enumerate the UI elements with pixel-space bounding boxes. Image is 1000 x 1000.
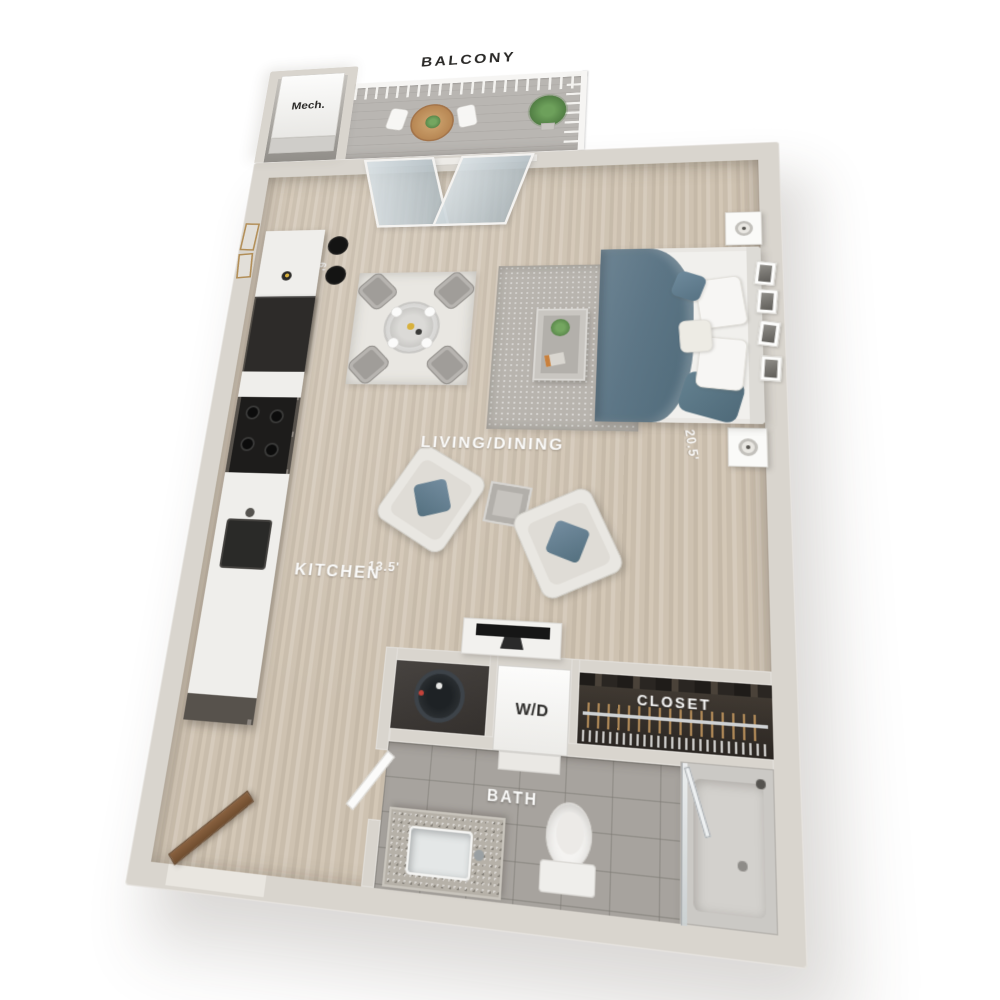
breakfast-bar	[255, 230, 325, 297]
floorplan: BALCONY Mech.	[125, 142, 808, 970]
accent-pillow	[678, 319, 713, 353]
bath-vanity	[382, 807, 506, 901]
mech-unit-front	[268, 136, 336, 154]
countertop	[238, 371, 305, 397]
wall-art-photo	[760, 293, 774, 311]
burner	[245, 405, 261, 419]
kitchen-faucet	[245, 508, 256, 518]
wall-art-photo	[764, 359, 778, 377]
burner	[269, 409, 285, 423]
nightstand	[727, 427, 768, 467]
refrigerator	[244, 296, 316, 372]
table-lamp	[738, 438, 758, 456]
balcony-chair	[385, 108, 410, 131]
floorplan-page: BALCONY Mech.	[0, 0, 1000, 1000]
wall-art-frame	[754, 261, 777, 286]
balcony-chair	[456, 104, 478, 129]
gold-wall-frame	[236, 253, 253, 279]
shower-stall	[680, 761, 779, 935]
tv-stand	[500, 637, 524, 650]
water-heater-closet	[390, 660, 489, 736]
washer-dryer: W/D	[492, 665, 571, 757]
wall-art-photo	[762, 324, 777, 343]
burner	[263, 443, 279, 458]
utility-bath-block: W/D CLOSET BATH	[361, 646, 778, 935]
cooktop-stove	[229, 397, 298, 474]
shower-head	[756, 779, 766, 790]
kitchen-sink	[219, 518, 273, 570]
toilet-tank	[538, 859, 596, 898]
wall-art-frame	[760, 355, 783, 381]
bed	[595, 246, 765, 424]
shower-tray	[693, 778, 766, 919]
sink-counter	[205, 501, 285, 592]
wall-art-photo	[758, 265, 772, 282]
tv-console	[461, 617, 563, 660]
water-heater	[412, 668, 467, 725]
shower-drain	[738, 861, 748, 872]
washer-dryer-label: W/D	[515, 699, 550, 721]
toilet-seat	[555, 811, 584, 856]
bath-faucet	[474, 849, 485, 861]
burner	[239, 437, 255, 451]
balcony-plant-pot	[540, 123, 555, 131]
table-lamp	[735, 221, 753, 236]
mech-closet: Mech.	[254, 66, 358, 162]
mech-label: Mech.	[291, 99, 326, 112]
mech-unit: Mech.	[271, 72, 345, 138]
shower-glass-panel	[681, 763, 688, 926]
countertop	[220, 472, 289, 503]
tv	[476, 623, 551, 639]
balcony-label: BALCONY	[386, 48, 553, 73]
wall-art-frame	[757, 320, 781, 347]
wall-art-frame	[756, 289, 778, 314]
nightstand	[725, 211, 763, 245]
balcony	[345, 75, 587, 159]
bath-sink	[405, 825, 473, 881]
